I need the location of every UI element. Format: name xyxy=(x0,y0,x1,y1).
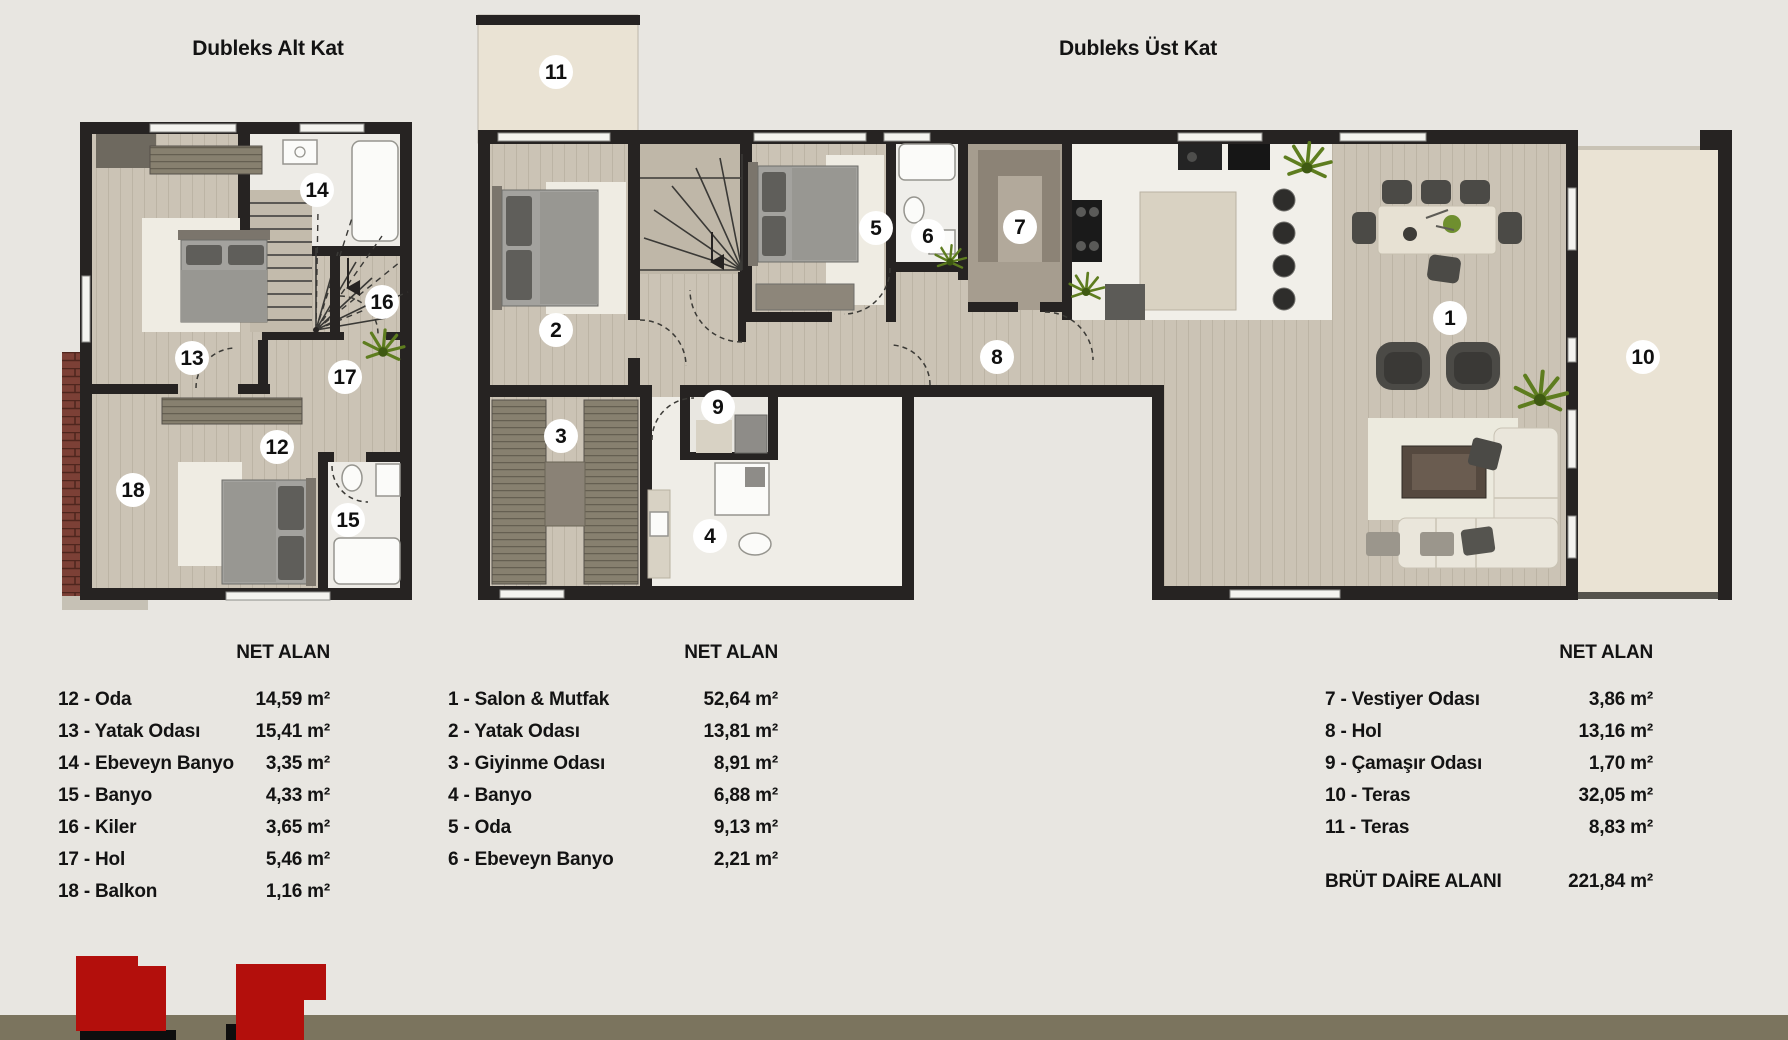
legend-row: 4 - Banyo6,88 m² xyxy=(448,780,778,812)
room-area: 2,21 m² xyxy=(714,844,778,876)
svg-text:15: 15 xyxy=(336,509,360,532)
room-area: 3,86 m² xyxy=(1589,684,1653,716)
svg-text:13: 13 xyxy=(180,347,203,370)
legend-upper-floor-1: NET ALAN 1 - Salon & Mutfak52,64 m²2 - Y… xyxy=(448,642,778,876)
svg-text:11: 11 xyxy=(545,61,568,84)
room-name: 16 - Kiler xyxy=(58,812,136,844)
room-name: 10 - Teras xyxy=(1325,780,1410,812)
legend-upper-floor-2: NET ALAN 7 - Vestiyer Odası3,86 m²8 - Ho… xyxy=(1325,642,1653,898)
logo-shape xyxy=(76,956,166,1031)
room-area: 4,33 m² xyxy=(266,780,330,812)
room-label-9: 9 xyxy=(701,390,735,424)
svg-text:1: 1 xyxy=(1444,307,1456,330)
room-name: 1 - Salon & Mutfak xyxy=(448,684,609,716)
legend-lower-floor: NET ALAN 12 - Oda14,59 m²13 - Yatak Odas… xyxy=(58,642,330,908)
floorplan-sheet: 14 16 13 17 12 18 15 11 2 5 6 7 9 3 4 8 … xyxy=(0,0,1788,1040)
svg-text:5: 5 xyxy=(870,217,882,240)
bed-room-2 xyxy=(492,182,626,314)
room-name: 18 - Balkon xyxy=(58,876,157,908)
legend-row: 14 - Ebeveyn Banyo3,35 m² xyxy=(58,748,330,780)
svg-text:2: 2 xyxy=(550,319,562,342)
room-name: 4 - Banyo xyxy=(448,780,532,812)
room-name: 5 - Oda xyxy=(448,812,511,844)
legend-row: 15 - Banyo4,33 m² xyxy=(58,780,330,812)
room-area: 8,83 m² xyxy=(1589,812,1653,844)
legend-row: 18 - Balkon1,16 m² xyxy=(58,876,330,908)
room-label-7: 7 xyxy=(1003,210,1037,244)
oven xyxy=(1228,144,1270,170)
gross-area-value: 221,84 m² xyxy=(1568,866,1653,898)
svg-text:12: 12 xyxy=(265,436,288,459)
legend-row: 17 - Hol5,46 m² xyxy=(58,844,330,876)
bathtub xyxy=(352,141,398,241)
closet xyxy=(96,134,156,168)
legend-row: 8 - Hol13,16 m² xyxy=(1325,716,1653,748)
room-label-10: 10 xyxy=(1626,340,1660,374)
legend-row: 2 - Yatak Odası13,81 m² xyxy=(448,716,778,748)
room-label-5: 5 xyxy=(859,211,893,245)
legend-row: 9 - Çamaşır Odası1,70 m² xyxy=(1325,748,1653,780)
room-label-17: 17 xyxy=(328,360,362,394)
room-label-14: 14 xyxy=(300,173,334,207)
wardrobe xyxy=(150,146,262,174)
room-label-3: 3 xyxy=(544,419,578,453)
svg-text:14: 14 xyxy=(305,179,329,202)
room-label-12: 12 xyxy=(260,430,294,464)
room-area: 8,91 m² xyxy=(714,748,778,780)
room-area: 52,64 m² xyxy=(704,684,778,716)
svg-text:17: 17 xyxy=(333,366,356,389)
room-name: 14 - Ebeveyn Banyo xyxy=(58,748,234,780)
room-area: 9,13 m² xyxy=(714,812,778,844)
legend-row: 12 - Oda14,59 m² xyxy=(58,684,330,716)
svg-text:3: 3 xyxy=(555,425,567,448)
room-area: 15,41 m² xyxy=(256,716,330,748)
room-label-16: 16 xyxy=(365,285,399,319)
room-area: 1,70 m² xyxy=(1589,748,1653,780)
svg-text:6: 6 xyxy=(922,225,934,248)
room-name: 8 - Hol xyxy=(1325,716,1382,748)
room-name: 12 - Oda xyxy=(58,684,131,716)
bed-room-13 xyxy=(142,218,270,332)
kitchen-island xyxy=(1140,192,1236,310)
room-area: 13,16 m² xyxy=(1579,716,1653,748)
toilet xyxy=(342,465,362,491)
stairs-floor xyxy=(636,142,740,274)
room-name: 6 - Ebeveyn Banyo xyxy=(448,844,614,876)
room-area: 3,35 m² xyxy=(266,748,330,780)
room-name: 17 - Hol xyxy=(58,844,125,876)
legend-row: 6 - Ebeveyn Banyo2,21 m² xyxy=(448,844,778,876)
upper-floor-plan xyxy=(476,15,1732,600)
lower-floor-plan xyxy=(62,122,412,610)
room-label-11: 11 xyxy=(539,55,573,89)
net-alan-header: NET ALAN xyxy=(58,642,330,668)
legend-row: 1 - Salon & Mutfak52,64 m² xyxy=(448,684,778,716)
svg-text:9: 9 xyxy=(712,396,724,419)
room-name: 15 - Banyo xyxy=(58,780,152,812)
room-label-2: 2 xyxy=(539,313,573,347)
room-label-4: 4 xyxy=(693,519,727,553)
room-name: 3 - Giyinme Odası xyxy=(448,748,605,780)
legend-row: 11 - Teras8,83 m² xyxy=(1325,812,1653,844)
svg-text:16: 16 xyxy=(370,291,393,314)
cabinet xyxy=(1105,284,1145,320)
vestiyer-7 xyxy=(978,150,1060,262)
legend-row: 16 - Kiler3,65 m² xyxy=(58,812,330,844)
svg-text:8: 8 xyxy=(991,346,1003,369)
room-area: 1,16 m² xyxy=(266,876,330,908)
svg-text:10: 10 xyxy=(1631,346,1654,369)
svg-text:18: 18 xyxy=(121,479,145,502)
room-label-15: 15 xyxy=(331,503,365,537)
legend-row: 13 - Yatak Odası15,41 m² xyxy=(58,716,330,748)
kitchen-sink xyxy=(1178,144,1222,170)
room-label-6: 6 xyxy=(911,219,945,253)
sink xyxy=(376,464,400,496)
lower-floor-title: Dubleks Alt Kat xyxy=(138,37,398,61)
bathtub xyxy=(334,538,400,584)
room-label-8: 8 xyxy=(980,340,1014,374)
legend-row: 10 - Teras32,05 m² xyxy=(1325,780,1653,812)
room-name: 13 - Yatak Odası xyxy=(58,716,200,748)
footer xyxy=(0,956,1788,1040)
room-name: 7 - Vestiyer Odası xyxy=(1325,684,1480,716)
svg-text:4: 4 xyxy=(704,525,716,548)
room-label-18: 18 xyxy=(116,473,150,507)
laundry-9 xyxy=(696,415,767,453)
legend-row: 5 - Oda9,13 m² xyxy=(448,812,778,844)
room-area: 3,65 m² xyxy=(266,812,330,844)
room-area: 6,88 m² xyxy=(714,780,778,812)
room-name: 9 - Çamaşır Odası xyxy=(1325,748,1482,780)
net-alan-header: NET ALAN xyxy=(448,642,778,668)
legend-row: 3 - Giyinme Odası8,91 m² xyxy=(448,748,778,780)
room-area: 32,05 m² xyxy=(1579,780,1653,812)
gross-area-label: BRÜT DAİRE ALANI xyxy=(1325,866,1502,898)
room-area: 13,81 m² xyxy=(704,716,778,748)
legend-row: 7 - Vestiyer Odası3,86 m² xyxy=(1325,684,1653,716)
room-label-1: 1 xyxy=(1433,301,1467,335)
room-name: 2 - Yatak Odası xyxy=(448,716,580,748)
sink xyxy=(283,140,317,164)
upper-floor-title: Dubleks Üst Kat xyxy=(1008,37,1268,61)
room-label-13: 13 xyxy=(175,341,209,375)
room-area: 5,46 m² xyxy=(266,844,330,876)
net-alan-header: NET ALAN xyxy=(1325,642,1653,668)
gross-area-row: BRÜT DAİRE ALANI 221,84 m² xyxy=(1325,866,1653,898)
svg-text:7: 7 xyxy=(1014,216,1026,239)
room-area: 14,59 m² xyxy=(256,684,330,716)
room-name: 11 - Teras xyxy=(1325,812,1409,844)
